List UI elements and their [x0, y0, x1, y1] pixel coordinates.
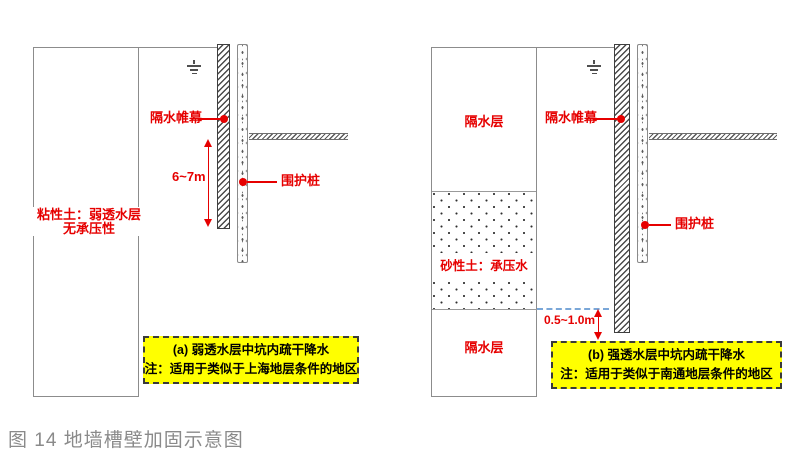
a-note-box-title: (a) 弱透水层中坑内疏干降水	[173, 341, 329, 360]
a-curtain-leader-line	[198, 118, 221, 120]
a-pile-leader-line	[247, 181, 277, 183]
b-gap-dimension-arrow	[594, 309, 603, 340]
b-sand-label-band: 砂性土：承压水	[432, 253, 536, 281]
b-note-box: (b) 强透水层中坑内疏干降水 注：适用于类似于南通地层条件的地区	[551, 341, 782, 389]
water-table-icon	[186, 60, 202, 75]
b-curtain-label: 隔水帷幕	[545, 111, 597, 125]
b-pile-label: 围护桩	[675, 217, 714, 231]
a-note-box: (a) 弱透水层中坑内疏干降水 注：适用于类似于上海地层条件的地区	[143, 336, 359, 384]
b-sand-type-label: 砂性土：承压水	[440, 260, 528, 274]
a-soil-type-line2: 无承压性	[30, 222, 148, 236]
a-ground-surface	[249, 133, 348, 140]
b-waterproof-curtain	[614, 44, 630, 333]
b-retaining-pile	[637, 44, 648, 263]
b-aquitard-top-label: 隔水层	[431, 115, 537, 129]
b-gap-dimension-label: 0.5~1.0m	[544, 314, 595, 327]
a-soil-outline-top	[33, 47, 218, 48]
b-note-box-note: 注：适用于类似于南通地层条件的地区	[560, 365, 773, 384]
b-aquitard-bottom-label: 隔水层	[431, 341, 537, 355]
a-soil-type-label: 粘性土：弱透水层 无承压性	[30, 207, 148, 236]
b-pile-leader-dot	[641, 221, 649, 229]
a-pile-leader-dot	[239, 178, 247, 186]
b-sand-layer-lower	[432, 281, 536, 309]
b-ground-surface	[649, 133, 777, 140]
b-note-box-title: (b) 强透水层中坑内疏干降水	[588, 346, 745, 365]
a-pile-label: 围护桩	[281, 174, 320, 188]
b-sand-bottom-boundary	[432, 309, 537, 310]
figure-canvas: 隔水帷幕 6~7m 围护桩 粘性土：弱透水层 无承压性 (a) 弱透水层中坑内疏…	[0, 0, 797, 461]
a-curtain-label: 隔水帷幕	[150, 111, 202, 125]
a-waterproof-curtain	[217, 44, 230, 229]
figure-caption: 图 14 地墙槽壁加固示意图	[8, 425, 244, 452]
b-soil-outline-top	[431, 47, 617, 48]
a-curtain-leader-dot	[220, 115, 228, 123]
b-curtain-leader-dot	[617, 115, 625, 123]
b-sand-layer-upper	[432, 192, 536, 253]
a-retaining-pile	[237, 44, 248, 263]
a-soil-outline-bottom	[33, 396, 139, 397]
a-note-box-note: 注：适用于类似于上海地层条件的地区	[145, 360, 358, 379]
b-pile-leader-line	[649, 224, 671, 226]
b-soil-outline-bottom	[431, 396, 537, 397]
a-depth-dimension-label: 6~7m	[172, 170, 206, 184]
b-curtain-leader-line	[593, 118, 618, 120]
water-table-icon	[586, 60, 602, 75]
a-soil-type-line1: 粘性土：弱透水层	[30, 208, 148, 222]
